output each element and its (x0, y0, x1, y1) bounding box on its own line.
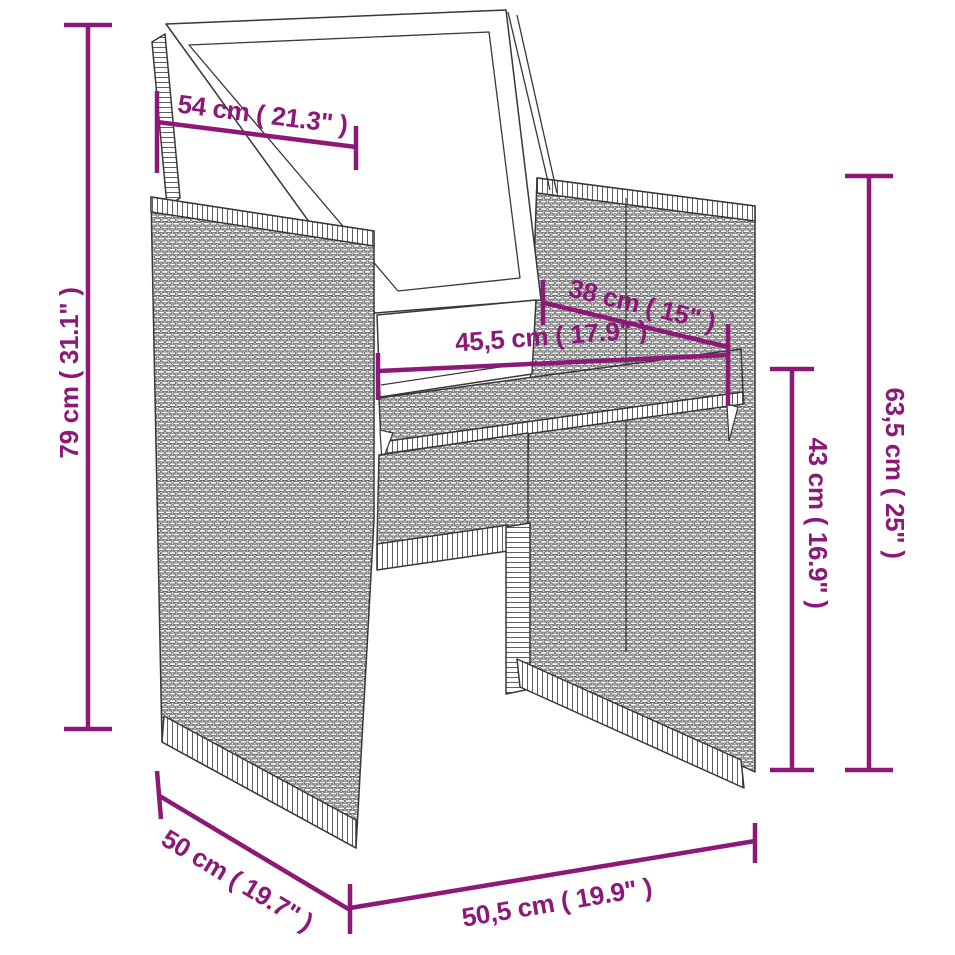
chair-illustration (151, 10, 755, 848)
dimension-diagram-page: 54 cm ( 21.3" ) 79 cm ( 31.1" ) 38 cm ( … (0, 0, 955, 955)
dim-total-height: 79 cm ( 31.1" ) (54, 25, 112, 729)
dim-back-height: 63,5 cm ( 25" ) (845, 176, 910, 770)
dim-back-height-label: 63,5 cm ( 25" ) (880, 387, 910, 558)
dim-seat-height-label: 43 cm ( 16.9" ) (803, 437, 833, 608)
dim-seat-height: 43 cm ( 16.9" ) (770, 369, 833, 770)
dim-base-width: 50,5 cm ( 19.9" ) (350, 823, 755, 934)
dimension-tick (157, 771, 161, 819)
dim-total-height-label: 79 cm ( 31.1" ) (54, 287, 84, 458)
dim-base-width-label: 50,5 cm ( 19.9" ) (460, 872, 655, 933)
chair-dimension-diagram: 54 cm ( 21.3" ) 79 cm ( 31.1" ) 38 cm ( … (0, 0, 955, 955)
